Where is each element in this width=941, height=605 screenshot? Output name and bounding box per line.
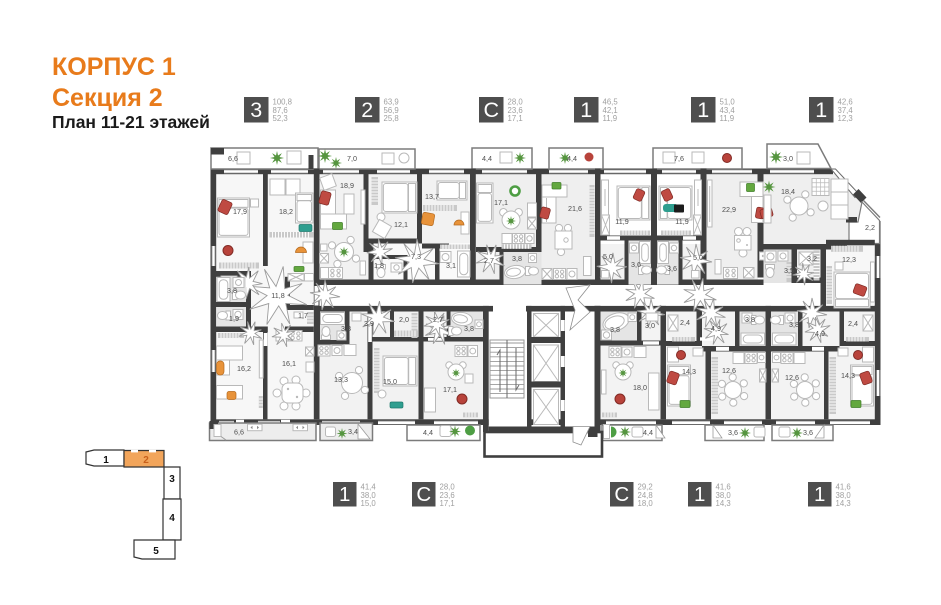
- svg-text:18,2: 18,2: [279, 207, 293, 216]
- svg-text:2,4: 2,4: [680, 318, 690, 327]
- svg-text:16,1: 16,1: [282, 359, 296, 368]
- svg-text:13,7: 13,7: [425, 192, 439, 201]
- svg-text:3,8: 3,8: [341, 324, 351, 333]
- svg-text:7,0: 7,0: [347, 154, 357, 163]
- svg-text:4,9: 4,9: [815, 329, 825, 338]
- svg-text:Секция 2: Секция 2: [52, 84, 163, 112]
- svg-text:18,9: 18,9: [340, 181, 354, 190]
- svg-text:5,0: 5,0: [603, 252, 613, 261]
- svg-text:11,9: 11,9: [720, 114, 735, 123]
- svg-text:3,6: 3,6: [631, 260, 641, 269]
- svg-text:3,2: 3,2: [807, 254, 817, 263]
- svg-text:3,8: 3,8: [464, 324, 474, 333]
- svg-text:4,4: 4,4: [643, 428, 653, 437]
- svg-text:2,7: 2,7: [484, 256, 494, 265]
- svg-text:3,6: 3,6: [803, 428, 813, 437]
- svg-text:2,0: 2,0: [399, 315, 409, 324]
- svg-text:17,1: 17,1: [443, 385, 457, 394]
- svg-text:17,1: 17,1: [440, 499, 455, 508]
- svg-text:2,2: 2,2: [865, 223, 875, 232]
- svg-text:18,0: 18,0: [633, 383, 647, 392]
- svg-text:4,4: 4,4: [482, 154, 492, 163]
- svg-text:КОРПУС 1: КОРПУС 1: [52, 53, 176, 81]
- svg-text:1: 1: [815, 98, 827, 122]
- svg-text:14,3: 14,3: [841, 371, 855, 380]
- svg-text:4: 4: [169, 513, 175, 524]
- svg-text:22,9: 22,9: [722, 205, 736, 214]
- svg-text:11,9: 11,9: [615, 217, 628, 226]
- svg-text:1,8: 1,8: [374, 261, 384, 270]
- svg-text:1: 1: [339, 483, 350, 506]
- svg-text:4,9: 4,9: [711, 324, 721, 333]
- svg-text:13,3: 13,3: [334, 375, 348, 384]
- svg-text:С: С: [483, 98, 499, 122]
- svg-text:3: 3: [169, 474, 175, 485]
- svg-text:С: С: [614, 483, 629, 506]
- svg-text:16,2: 16,2: [237, 364, 251, 373]
- svg-text:3,8: 3,8: [745, 315, 755, 324]
- svg-text:2,7: 2,7: [433, 315, 443, 324]
- svg-text:14,3: 14,3: [716, 499, 731, 508]
- svg-text:2: 2: [143, 455, 149, 466]
- svg-text:3,8: 3,8: [610, 325, 620, 334]
- svg-text:1: 1: [580, 98, 592, 122]
- svg-text:1,9: 1,9: [229, 314, 239, 323]
- svg-text:3,8: 3,8: [227, 286, 237, 295]
- svg-text:14,3: 14,3: [682, 367, 696, 376]
- svg-text:12,1: 12,1: [394, 220, 408, 229]
- svg-text:52,3: 52,3: [273, 114, 288, 123]
- svg-text:4,4: 4,4: [567, 154, 577, 163]
- svg-text:3,6: 3,6: [728, 428, 738, 437]
- svg-text:18,4: 18,4: [781, 187, 795, 196]
- svg-text:6,6: 6,6: [228, 154, 238, 163]
- svg-text:7,3: 7,3: [411, 252, 421, 261]
- svg-text:1,7: 1,7: [298, 311, 308, 320]
- svg-text:2: 2: [361, 98, 373, 122]
- svg-text:11,9: 11,9: [675, 217, 688, 226]
- svg-text:15,0: 15,0: [383, 377, 397, 386]
- svg-text:6,6: 6,6: [234, 428, 244, 437]
- svg-text:1: 1: [697, 98, 709, 122]
- svg-text:3,0: 3,0: [783, 154, 793, 163]
- svg-text:3,0: 3,0: [645, 321, 655, 330]
- svg-text:3: 3: [250, 98, 262, 122]
- svg-text:14,3: 14,3: [836, 499, 851, 508]
- svg-text:1: 1: [103, 455, 109, 466]
- svg-text:5,0: 5,0: [693, 253, 703, 262]
- svg-text:3,6: 3,6: [667, 264, 677, 273]
- svg-text:2,4: 2,4: [848, 319, 858, 328]
- svg-text:18,0: 18,0: [638, 499, 654, 508]
- svg-text:1: 1: [694, 483, 705, 506]
- svg-text:3,9: 3,9: [364, 319, 374, 328]
- svg-text:11,9: 11,9: [603, 114, 618, 123]
- svg-text:7,6: 7,6: [674, 154, 684, 163]
- svg-text:15,0: 15,0: [361, 499, 377, 508]
- svg-text:25,8: 25,8: [384, 114, 399, 123]
- svg-text:3,5: 3,5: [784, 266, 794, 275]
- svg-text:5: 5: [153, 546, 159, 557]
- svg-text:План 11-21 этажей: План 11-21 этажей: [52, 112, 210, 132]
- svg-text:3,8: 3,8: [789, 320, 799, 329]
- svg-text:11,8: 11,8: [271, 291, 284, 300]
- svg-text:12,3: 12,3: [838, 114, 853, 123]
- svg-text:4,4: 4,4: [423, 428, 433, 437]
- svg-text:3,1: 3,1: [446, 261, 456, 270]
- svg-text:1: 1: [814, 483, 825, 506]
- svg-text:3,4: 3,4: [348, 427, 358, 436]
- svg-text:3,8: 3,8: [512, 254, 522, 263]
- svg-text:12,3: 12,3: [842, 255, 856, 264]
- svg-text:12,6: 12,6: [785, 373, 799, 382]
- svg-text:17,1: 17,1: [494, 198, 508, 207]
- svg-text:21,6: 21,6: [568, 204, 582, 213]
- svg-text:С: С: [416, 483, 431, 506]
- svg-text:17,1: 17,1: [508, 114, 523, 123]
- svg-text:17,9: 17,9: [233, 207, 247, 216]
- svg-text:12,6: 12,6: [722, 366, 736, 375]
